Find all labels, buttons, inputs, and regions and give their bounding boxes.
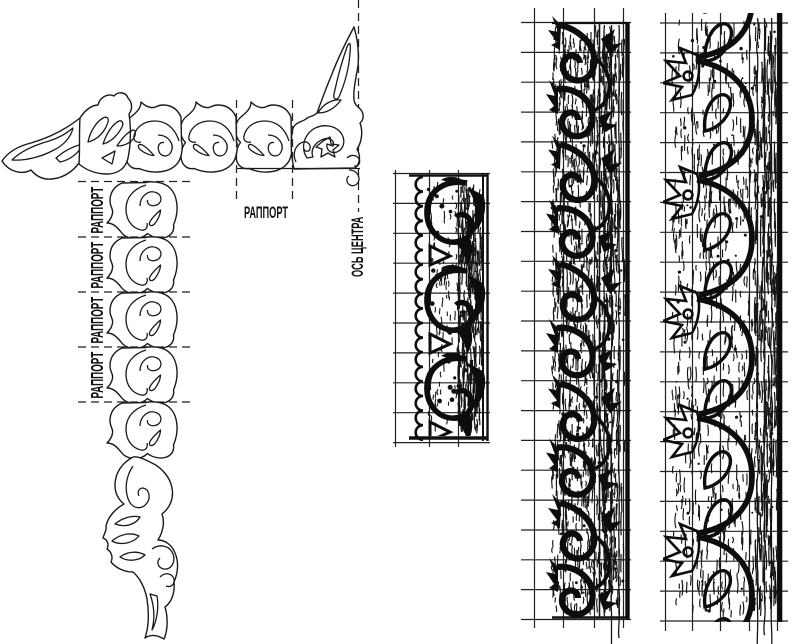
svg-text:ОСЬ ЦЕНТРА: ОСЬ ЦЕНТРА <box>348 216 367 277</box>
svg-text:РАППОРТ: РАППОРТ <box>88 187 108 234</box>
svg-text:РАППОРТ: РАППОРТ <box>88 352 108 399</box>
svg-text:РАППОРТ: РАППОРТ <box>244 203 289 222</box>
svg-text:РАППОРТ: РАППОРТ <box>88 297 108 344</box>
svg-text:РАППОРТ: РАППОРТ <box>88 242 108 289</box>
